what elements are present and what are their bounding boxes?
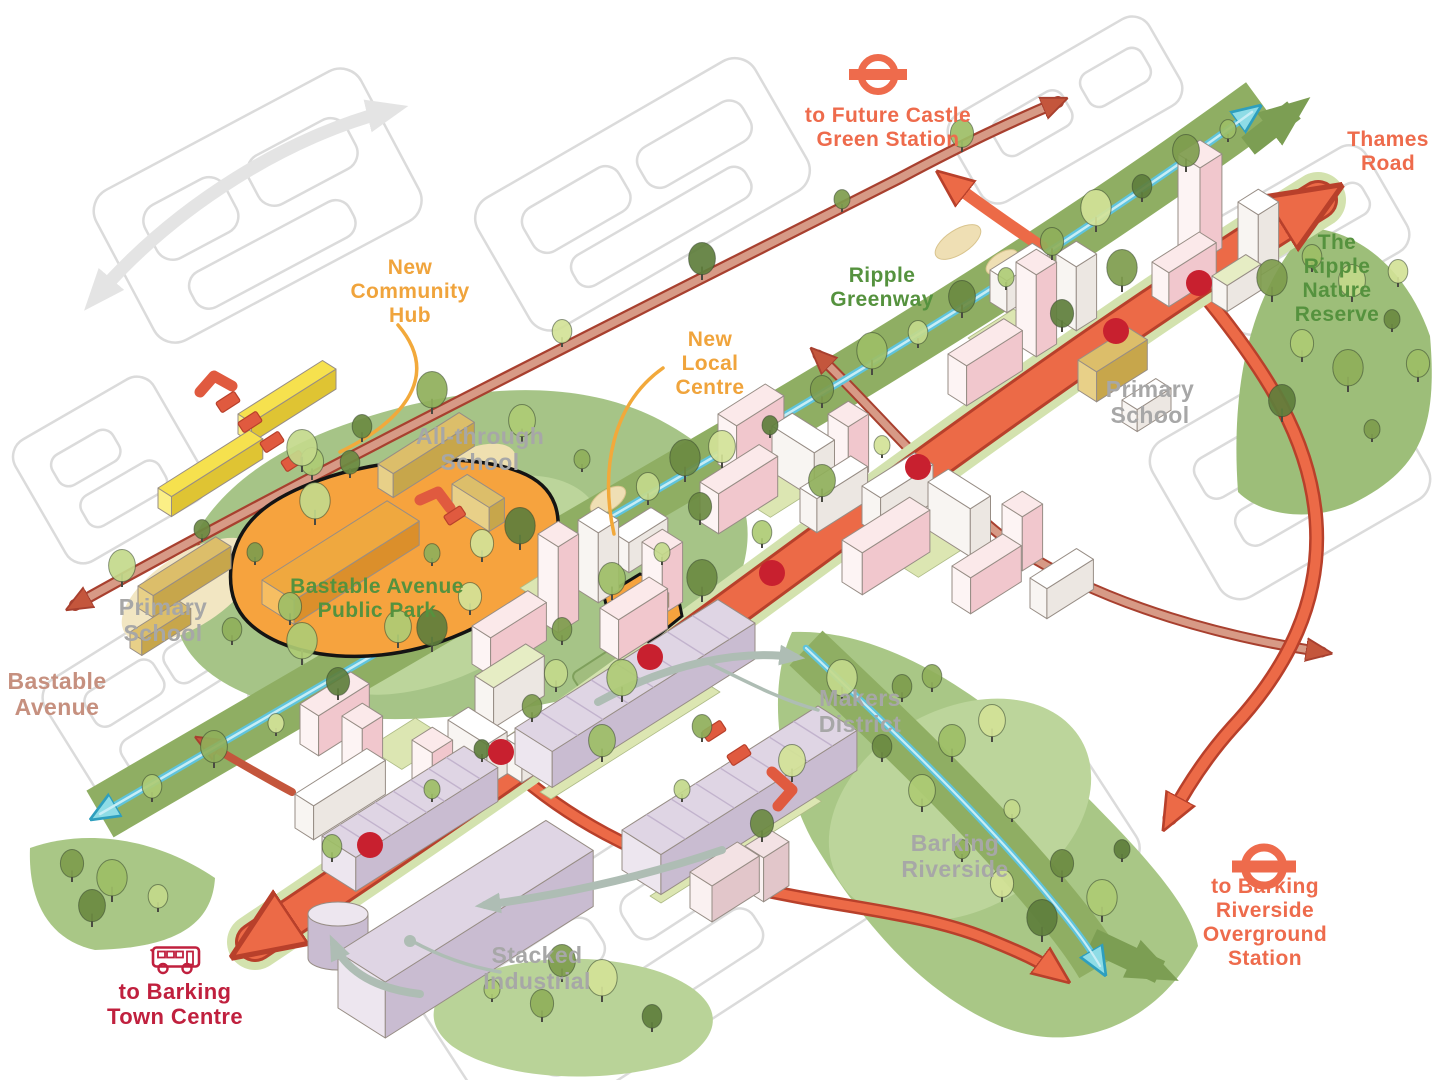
tfl-roundel-icon (1222, 838, 1306, 901)
green-wedge-sw (30, 838, 215, 950)
junction-node (1186, 270, 1212, 296)
masterplan-canvas: to Future Castle Green Station Thames Ro… (0, 0, 1440, 1080)
junction-node (488, 739, 514, 765)
playground-1 (930, 218, 987, 266)
junction-node (357, 832, 383, 858)
junction-node (637, 644, 663, 670)
bus-icon (149, 942, 205, 983)
junction-node (759, 560, 785, 586)
junction-node (905, 454, 931, 480)
tfl-roundel-icon (841, 49, 915, 106)
junction-node (1103, 318, 1129, 344)
masterplan-artwork (0, 0, 1440, 1080)
